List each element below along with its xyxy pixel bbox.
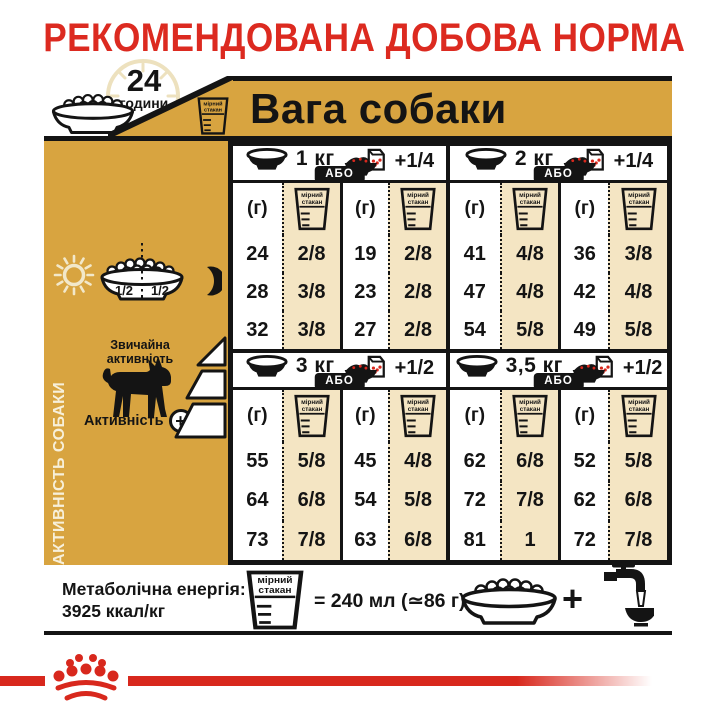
measuring-cup-icon [512,187,548,231]
mixed-cups-value: 2/8 [388,311,446,349]
cup-column-header [608,183,667,235]
weight-section-2kg: 2 кг АБО +1/4 (г) (г) 41 4/8 36 3/8 47 4… [450,146,667,353]
brand-line-left [0,676,45,686]
dry-grams-value: 62 [450,442,500,481]
mixed-grams-value: 63 [340,521,389,560]
dog-weight-title: Вага собаки [250,85,507,133]
dry-grams-value: 28 [233,273,282,311]
mixed-grams-value: 42 [558,273,608,311]
metabolic-energy-block: Метаболічна енергія: 3925 ккал/кг [62,578,246,622]
dry-grams-value: 32 [233,311,282,349]
water-tap-icon [596,560,654,630]
section-body: (г) (г) 55 5/8 45 4/8 64 6/8 54 5/8 73 7… [233,390,446,560]
section-header: 3 кг АБО +1/2 [233,353,446,390]
mixed-grams-value: 62 [558,481,608,520]
cup-column-header [388,390,446,442]
mixed-cups-value: 7/8 [608,521,667,560]
mixed-cups-value: 2/8 [388,235,446,273]
mixed-grams-value: 54 [340,481,389,520]
dry-food-bowl-icon [464,148,508,171]
dry-cups-value: 7/8 [500,481,559,520]
dry-grams-value: 54 [450,311,500,349]
grams-unit-label: (г) [450,390,500,442]
or-badge: АБО [314,166,365,183]
dry-cups-value: 4/8 [500,235,559,273]
dry-grams-value: 64 [233,481,282,520]
cup-column-header [282,390,340,442]
measuring-cup-icon [621,394,657,438]
activity-label: Активність [84,413,164,429]
dry-grams-value: 41 [450,235,500,273]
dry-grams-value: 73 [233,521,282,560]
dry-grams-value: 24 [233,235,282,273]
mixed-cups-value: 5/8 [608,442,667,481]
sun-icon [52,253,96,297]
split-meal-bowl-icon: 1/2 1/2 [94,243,190,321]
activity-sidebar: АКТИВНІСТЬ СОБАКИ 1/2 1/2 Звичайна актив… [44,141,228,565]
mixed-cups-value: 3/8 [608,235,667,273]
grams-unit-label: (г) [233,390,282,442]
mixed-cups-value: 5/8 [608,311,667,349]
grams-unit-label: (г) [233,183,282,235]
metabolic-energy-label: Метаболічна енергія: [62,578,246,600]
dry-grams-value: 47 [450,273,500,311]
activity-level-steps-icon [174,335,228,441]
measuring-cup-icon [196,97,230,135]
dry-food-bowl-icon [455,355,499,378]
grams-unit-label: (г) [340,390,389,442]
measuring-cup-icon [246,570,304,630]
dry-cups-value: 3/8 [282,311,340,349]
dry-cups-value: 3/8 [282,273,340,311]
cup-column-header [500,183,559,235]
measuring-cup-icon [400,187,436,231]
mixed-grams-value: 19 [340,235,389,273]
measuring-cup-icon [621,187,657,231]
mixed-cups-value: 5/8 [388,481,446,520]
dog-weight-header: Вага собаки [233,76,672,136]
mixed-grams-value: 72 [558,521,608,560]
metabolic-energy-value: 3925 ккал/кг [62,600,246,622]
section-header: 1 кг АБО +1/4 [233,146,446,183]
feeding-guide-panel: РЕКОМЕНДОВАНА ДОБОВА НОРМА 24 години Ваг… [0,0,720,720]
section-body: (г) (г) 41 4/8 36 3/8 47 4/8 42 4/8 54 5… [450,183,667,349]
wet-supplement-label: +1/4 [614,150,653,173]
dry-cups-value: 6/8 [500,442,559,481]
or-badge: АБО [314,373,365,390]
measuring-cup-icon [294,394,330,438]
grams-unit-label: (г) [340,183,389,235]
cup-column-header [388,183,446,235]
wet-supplement-label: +1/2 [395,357,434,380]
weight-section-1kg: 1 кг АБО +1/4 (г) (г) 24 2/8 19 2/8 28 3… [233,146,450,353]
wet-supplement-label: +1/2 [623,357,662,380]
or-badge: АБО [533,166,584,183]
section-header: 2 кг АБО +1/4 [450,146,667,183]
dry-cups-value: 5/8 [282,442,340,481]
or-badge: АБО [533,373,584,390]
section-body: (г) (г) 62 6/8 52 5/8 72 7/8 62 6/8 81 1… [450,390,667,560]
mixed-grams-value: 23 [340,273,389,311]
mixed-cups-value: 6/8 [388,521,446,560]
mixed-grams-value: 27 [340,311,389,349]
dry-grams-value: 55 [233,442,282,481]
dry-grams-value: 72 [450,481,500,520]
mixed-cups-value: 2/8 [388,273,446,311]
page-title: РЕКОМЕНДОВАНА ДОБОВА НОРМА [43,16,677,61]
wet-supplement-label: +1/4 [395,150,434,173]
cup-column-header [282,183,340,235]
divider-line-bottom [44,631,672,635]
weight-section-3kg: 3 кг АБО +1/2 (г) (г) 55 5/8 45 4/8 64 6… [233,353,450,560]
mixed-cups-value: 4/8 [388,442,446,481]
brand-line-right [128,676,668,686]
section-header: 3,5 кг АБО +1/2 [450,353,667,390]
mixed-grams-value: 49 [558,311,608,349]
dry-grams-value: 81 [450,521,500,560]
dry-cups-value: 1 [500,521,559,560]
dry-cups-value: 5/8 [500,311,559,349]
mixed-grams-value: 45 [340,442,389,481]
mixed-grams-value: 52 [558,442,608,481]
weight-section-3-5kg: 3,5 кг АБО +1/2 (г) (г) 62 6/8 52 5/8 72… [450,353,667,560]
dry-cups-value: 6/8 [282,481,340,520]
cup-column-header [500,390,559,442]
cup-column-header [608,390,667,442]
mixed-cups-value: 4/8 [608,273,667,311]
moon-icon [196,265,222,297]
activity-sidebar-vertical-label: АКТИВНІСТЬ СОБАКИ [51,283,69,565]
section-body: (г) (г) 24 2/8 19 2/8 28 3/8 23 2/8 32 3… [233,183,446,349]
cup-volume-equation: = 240 мл (≃86 г) [314,589,466,613]
grams-unit-label: (г) [558,183,608,235]
dry-cups-value: 2/8 [282,235,340,273]
measuring-cup-icon [294,187,330,231]
half-portion-right: 1/2 [151,283,169,298]
grams-unit-label: (г) [450,183,500,235]
dry-cups-value: 4/8 [500,273,559,311]
dry-food-bowl-icon [245,148,289,171]
mixed-cups-value: 6/8 [608,481,667,520]
measuring-cup-icon [400,394,436,438]
half-portion-left: 1/2 [115,283,133,298]
measuring-cup-icon [512,394,548,438]
food-bowl-icon [458,568,560,628]
grams-unit-label: (г) [558,390,608,442]
plus-sign: + [562,578,583,620]
dry-food-bowl-icon [245,355,289,378]
crown-logo [44,650,128,704]
feeding-table: 1 кг АБО +1/4 (г) (г) 24 2/8 19 2/8 28 3… [228,141,672,565]
dry-cups-value: 7/8 [282,521,340,560]
mixed-grams-value: 36 [558,235,608,273]
